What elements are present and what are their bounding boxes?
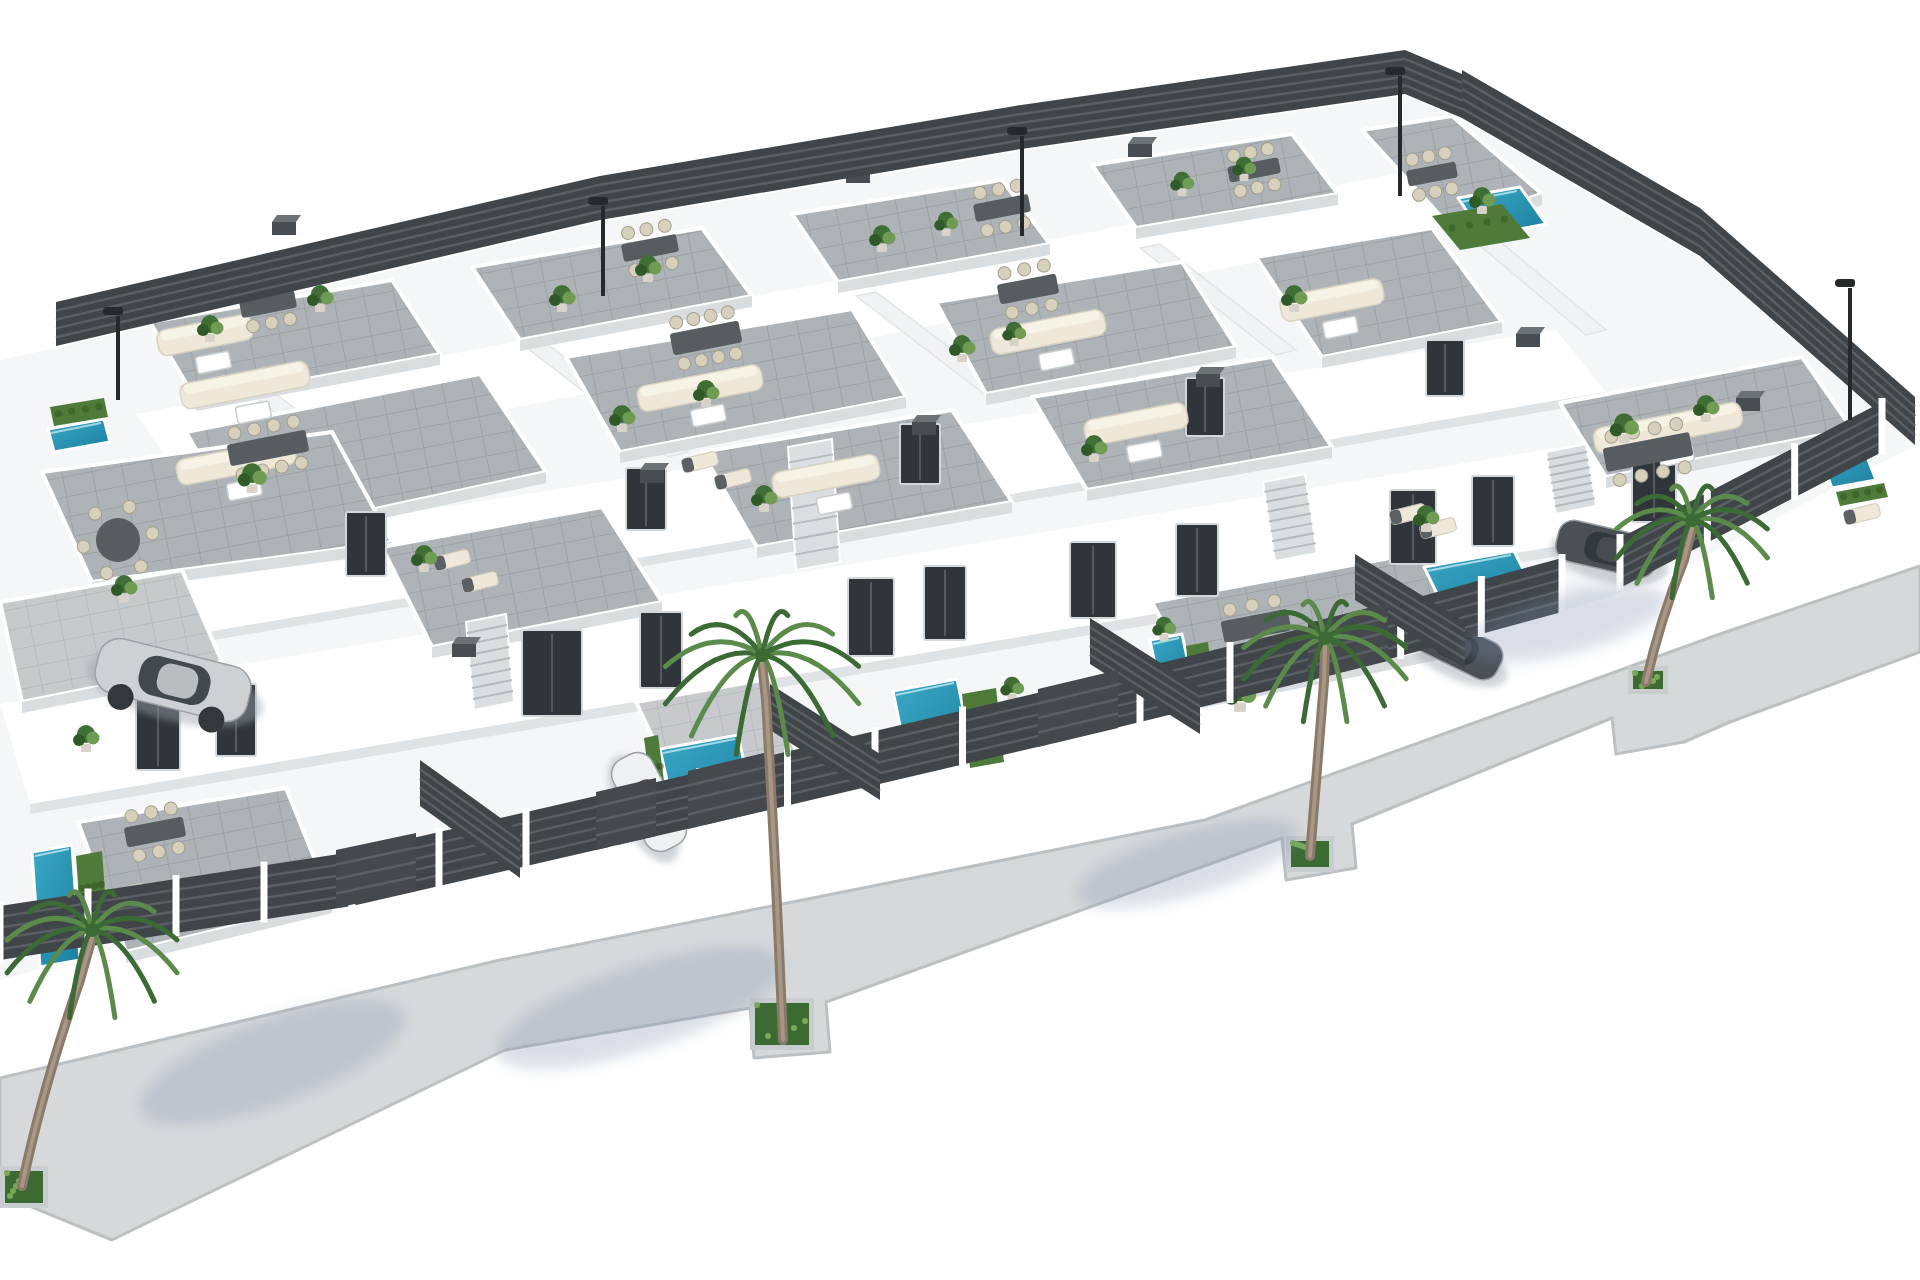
plant-pot: [247, 484, 258, 493]
fence-post: [261, 862, 268, 923]
foliage: [563, 292, 576, 305]
plant-pot: [119, 594, 129, 602]
planter-leaf: [802, 1018, 808, 1024]
lamp-bulb: [1385, 67, 1393, 75]
foliage: [1095, 442, 1108, 455]
foliage: [211, 322, 224, 335]
foliage: [934, 220, 945, 231]
plant-pot: [643, 274, 653, 282]
plant-pot: [315, 304, 325, 312]
hedge-leaf: [91, 882, 98, 889]
glass-door: [346, 512, 386, 576]
plant-pot: [419, 564, 429, 572]
plant-pot: [957, 354, 967, 362]
ac-top-face: [452, 637, 481, 644]
foliage: [307, 294, 319, 306]
fence-post: [173, 875, 180, 936]
plant-pot: [1234, 702, 1246, 712]
foliage: [411, 554, 423, 566]
hedge-leaf: [1852, 491, 1859, 498]
glass-door: [1426, 340, 1464, 396]
hedge-leaf: [1876, 486, 1883, 493]
foliage: [946, 218, 958, 230]
plant-pot: [1178, 189, 1187, 196]
foliage: [1281, 294, 1293, 306]
hedge-leaf: [78, 885, 85, 892]
fence-post: [0, 902, 4, 963]
foliage: [1170, 180, 1181, 191]
hedge-leaf: [82, 405, 89, 412]
planter-leaf: [765, 1033, 771, 1039]
foliage: [1413, 514, 1425, 526]
fence-post: [1879, 398, 1886, 455]
lamp-bulb: [1835, 279, 1843, 287]
plant-pot: [1010, 339, 1019, 346]
foliage: [963, 342, 976, 355]
foliage: [1693, 404, 1705, 416]
plant-pot: [1089, 454, 1099, 462]
hedge-leaf: [68, 408, 75, 415]
plant-pot: [1289, 304, 1299, 312]
ac-front-face: [452, 644, 476, 657]
foliage: [1014, 328, 1026, 340]
hedge-leaf: [1864, 488, 1871, 495]
hedge-leaf: [657, 763, 664, 770]
foliage: [1610, 423, 1623, 436]
foliage: [693, 389, 705, 401]
fence-post: [1617, 534, 1624, 591]
glass-door: [1472, 476, 1514, 546]
foliage: [1002, 330, 1013, 341]
glass-door: [640, 612, 682, 688]
foliage: [869, 234, 881, 246]
ac-top-face: [1196, 367, 1225, 374]
plant-pot: [877, 244, 887, 252]
ac-front-face: [1128, 144, 1152, 157]
foliage: [623, 412, 636, 425]
ac-front-face: [1516, 334, 1540, 347]
foliage: [1469, 196, 1481, 208]
foliage: [949, 344, 961, 356]
hedge-leaf: [98, 881, 105, 888]
ac-top-face: [1736, 391, 1765, 398]
fence-post: [959, 707, 966, 768]
ac-top-face: [912, 415, 941, 422]
ac-top-face: [640, 463, 669, 470]
glass-door: [848, 578, 894, 656]
foliage: [1152, 625, 1163, 636]
foliage: [1625, 420, 1639, 434]
glass-door: [924, 566, 966, 640]
sun-lounger: [1843, 503, 1881, 525]
plant-pot: [701, 399, 711, 407]
hedge-leaf: [1448, 225, 1455, 232]
foliage: [87, 732, 100, 745]
planter-leaf: [7, 1193, 13, 1199]
foliage: [238, 473, 251, 486]
foliage: [649, 262, 662, 275]
rooftop-ac-unit: [272, 215, 301, 235]
foliage: [111, 584, 123, 596]
foliage: [549, 294, 561, 306]
planter-leaf: [10, 1188, 16, 1194]
plant-pot: [1701, 414, 1711, 422]
foliage: [765, 492, 778, 505]
ac-front-face: [912, 422, 936, 435]
ac-top-face: [1516, 327, 1545, 334]
hedge-leaf: [1501, 216, 1508, 223]
foliage: [609, 414, 621, 426]
lamp-bulb: [103, 307, 111, 315]
lamp-bulb: [588, 197, 596, 205]
hedge-leaf: [95, 403, 102, 410]
fence-post: [436, 828, 443, 889]
foliage: [253, 470, 267, 484]
fence-post: [1791, 443, 1798, 500]
palm-crown: [755, 648, 769, 662]
hedge-leaf: [1840, 493, 1847, 500]
plant-pot: [557, 304, 567, 312]
foliage: [1427, 512, 1440, 525]
foliage: [1000, 685, 1011, 696]
foliage: [883, 232, 896, 245]
planter-leaf: [754, 1002, 760, 1008]
plant-pot: [617, 424, 627, 432]
foliage: [321, 292, 334, 305]
foliage: [1483, 194, 1496, 207]
foliage: [707, 387, 720, 400]
hedge-leaf: [1466, 222, 1473, 229]
render-canvas: [0, 0, 1920, 1280]
ac-front-face: [640, 470, 664, 483]
ac-front-face: [272, 222, 296, 235]
ac-top-face: [1128, 137, 1157, 144]
external-staircase: [1546, 444, 1596, 514]
plant-pot: [1477, 206, 1487, 214]
foliage: [751, 494, 763, 506]
planter-leaf: [791, 1025, 797, 1031]
glass-door: [522, 630, 582, 716]
planter-leaf: [4, 1170, 10, 1176]
foliage: [197, 324, 209, 336]
plant-pot: [1160, 634, 1169, 641]
plant-pot: [942, 229, 951, 236]
planter-leaf: [1632, 670, 1638, 676]
palm-crown: [1685, 513, 1699, 527]
architectural-render: [0, 0, 1920, 1280]
plant-pot: [205, 334, 215, 342]
foliage: [1182, 178, 1194, 190]
foliage: [1707, 402, 1720, 415]
hedge-leaf: [1483, 219, 1490, 226]
foliage: [425, 552, 438, 565]
palm-crown: [1318, 631, 1332, 645]
foliage: [1295, 292, 1308, 305]
plant-pot: [1240, 174, 1249, 181]
lamp-bulb: [1007, 127, 1015, 135]
foliage: [635, 264, 647, 276]
fence-post: [1227, 642, 1234, 703]
ac-front-face: [1196, 374, 1220, 387]
foliage: [125, 582, 138, 595]
external-staircase: [466, 614, 514, 710]
glass-door: [1070, 542, 1116, 618]
palm-crown: [85, 923, 99, 937]
ac-top-face: [272, 215, 301, 222]
glass-door: [1176, 524, 1218, 596]
plant-pot: [1421, 524, 1431, 532]
foliage: [1244, 163, 1256, 175]
foliage: [1164, 623, 1176, 635]
plant-pot: [1619, 434, 1630, 443]
scene-root: [0, 50, 1920, 1240]
foliage: [73, 734, 85, 746]
plant-pot: [759, 504, 769, 512]
foliage: [1081, 444, 1093, 456]
hedge-leaf: [55, 410, 62, 417]
foliage: [1232, 165, 1243, 176]
fence-post: [523, 808, 530, 869]
foliage: [1012, 683, 1024, 695]
plant-pot: [81, 744, 91, 752]
